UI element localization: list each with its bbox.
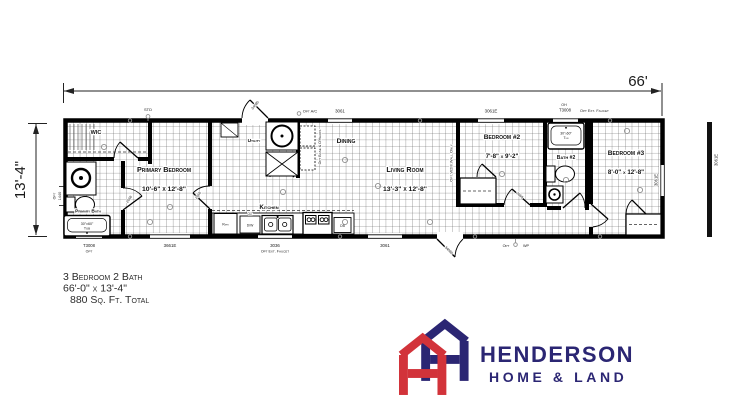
bedroom2-dims: 7'-8" x 9'-2" [486, 153, 519, 160]
kitchen-label: Kitchen [259, 204, 278, 211]
description-line3: 880 Sq. Ft. Total [70, 294, 149, 306]
window-t3008-bottom: T3008 [83, 243, 96, 248]
logo-tagline: HOME & LAND [489, 369, 627, 385]
opt-wp-right: WP [523, 244, 530, 248]
utility-label: Utility [248, 138, 261, 144]
navy-roof [423, 324, 466, 341]
window-3061e-top: 3061E [485, 109, 498, 114]
window-3061e-side: 3061E [714, 154, 719, 166]
opt-left-note: Opt [53, 193, 57, 200]
dishwasher-label: D/W [247, 224, 254, 228]
opt-wp-left: Opt [503, 244, 510, 248]
tub-size-label: 30"x60" [81, 222, 94, 226]
window-3036: 3036 [270, 243, 280, 248]
living-room-label: Living Room [386, 165, 423, 174]
std-note: STD [144, 107, 152, 112]
oh-note: OH [561, 103, 567, 107]
logo-house-mark [399, 324, 469, 395]
front-door-size: 34080 [444, 245, 454, 255]
description-line1: 3 Bedroom 2 Bath [63, 271, 142, 283]
dimension-height: 13'-4" [12, 124, 47, 237]
bath2-label: Bath #2 [557, 155, 576, 161]
dim-width-label: 66' [628, 73, 648, 90]
side-window-detail: 3061E [707, 122, 719, 237]
dining-label: Dining [337, 138, 356, 145]
primary-bath-label: Primary Bath [75, 209, 101, 215]
company-logo: HENDERSON HOME & LAND [399, 324, 634, 395]
dimension-width: 66' [64, 73, 663, 116]
dishwasher-opt-label: Opt [247, 212, 253, 216]
window-3661e: 3661E [164, 243, 177, 248]
window-1440-left: 1440 [58, 192, 62, 200]
kitchen-fixtures: Refr Opt D/W DB [212, 211, 354, 235]
logo-company-name: HENDERSON [480, 342, 634, 367]
tub2-word-label: Tub [564, 136, 570, 140]
window-3061-top: 3061 [335, 109, 345, 114]
opt-base-oheads-note: Opt Base & O'Heads [318, 130, 322, 165]
faucet-bottom-note: Opt Ext. Faucet [261, 250, 289, 254]
tub-word-label: Tub [84, 227, 90, 231]
primary-bedroom-dims: 10'-6" x 12'-8" [142, 186, 186, 193]
faucet-top-note: Opt Ext. Faucet [580, 109, 609, 113]
living-room-dims: 13'-3" x 12'-8" [383, 186, 427, 193]
opt-wall-note: Opt W2III Wall Only [449, 144, 454, 181]
window-3061-bottom: 3061 [380, 243, 390, 248]
bedroom2-label: Bedroom #2 [484, 134, 521, 141]
dim-height-label: 13'-4" [12, 161, 29, 199]
primary-bedroom-label: Primary Bedroom [137, 165, 191, 174]
floor-plan-drawing: 66' 13'-4" 34080 34080 [0, 0, 753, 411]
wic-label: WIC [91, 130, 102, 136]
floor-plan-page: 66' 13'-4" 34080 34080 [0, 0, 753, 411]
window-3061e-right: 3061E [654, 174, 659, 186]
window-t3008-top: T3008 [559, 108, 572, 113]
opt-ac-note: Opt A/C [303, 109, 318, 114]
refrigerator-label: Refr [222, 223, 229, 227]
bedroom3-dims: 8'-0" x 12'-8" [608, 169, 644, 176]
tub2-size-label: 30"x60" [560, 132, 572, 136]
bedroom3-label: Bedroom #3 [608, 150, 645, 157]
opt-bottom-note: Opt [86, 250, 93, 254]
plan-description: 3 Bedroom 2 Bath 66'-0" x 13'-4" 880 Sq.… [63, 271, 149, 306]
description-line2: 66'-0" x 13'-4" [63, 283, 127, 295]
